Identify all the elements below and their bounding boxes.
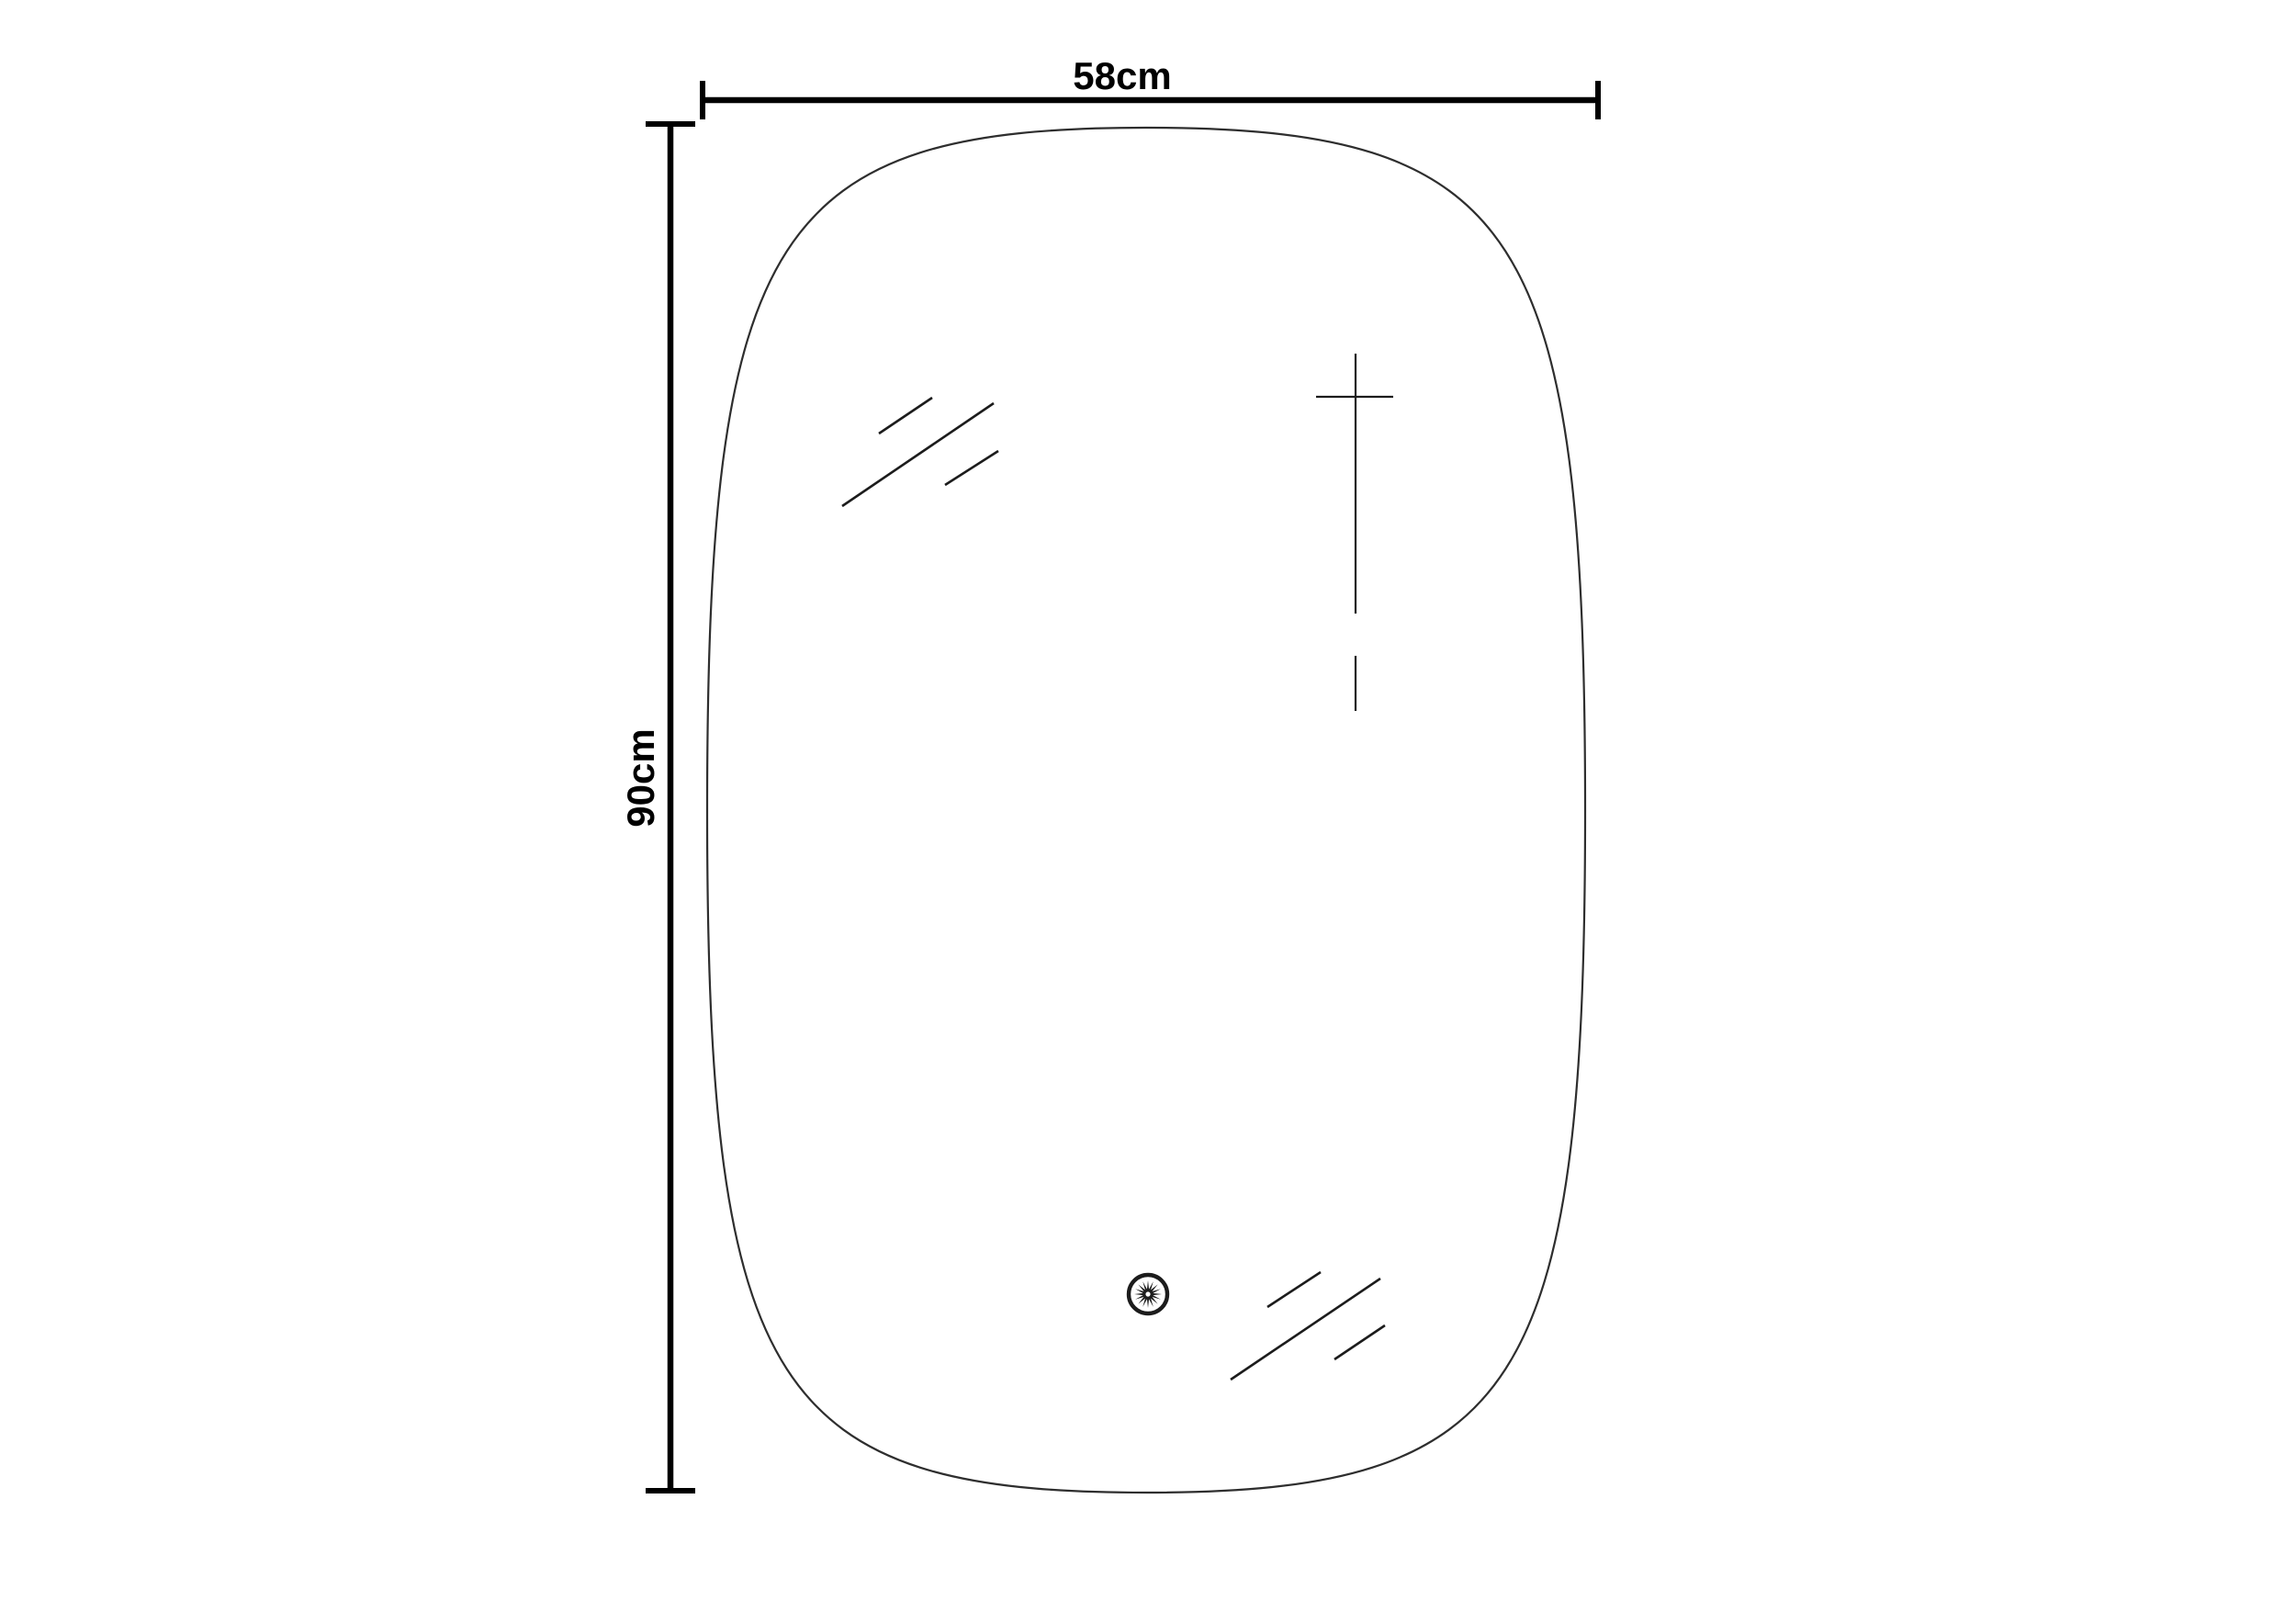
touch-sensor-icon [1129,1275,1167,1313]
width-dimension-label: 58cm [1073,57,1171,96]
mirror-dimension-diagram: 58cm 90cm [0,0,2296,1623]
sensor-center-dot [1145,1291,1150,1296]
shine-lines-top-left [842,398,998,506]
height-dimension-label: 90cm [622,728,660,827]
shine-line-short-upper-icon [1267,1272,1321,1307]
shine-line-long-icon [842,403,994,506]
shine-line-short-lower-icon [945,451,998,485]
shine-line-short-upper-icon [879,398,932,434]
shine-lines-bottom-right [1231,1272,1385,1380]
shine-line-long-icon [1231,1279,1380,1380]
cross-mark-icon [1316,354,1393,711]
diagram-drawing [0,0,2296,1623]
shine-line-short-lower-icon [1334,1325,1385,1359]
